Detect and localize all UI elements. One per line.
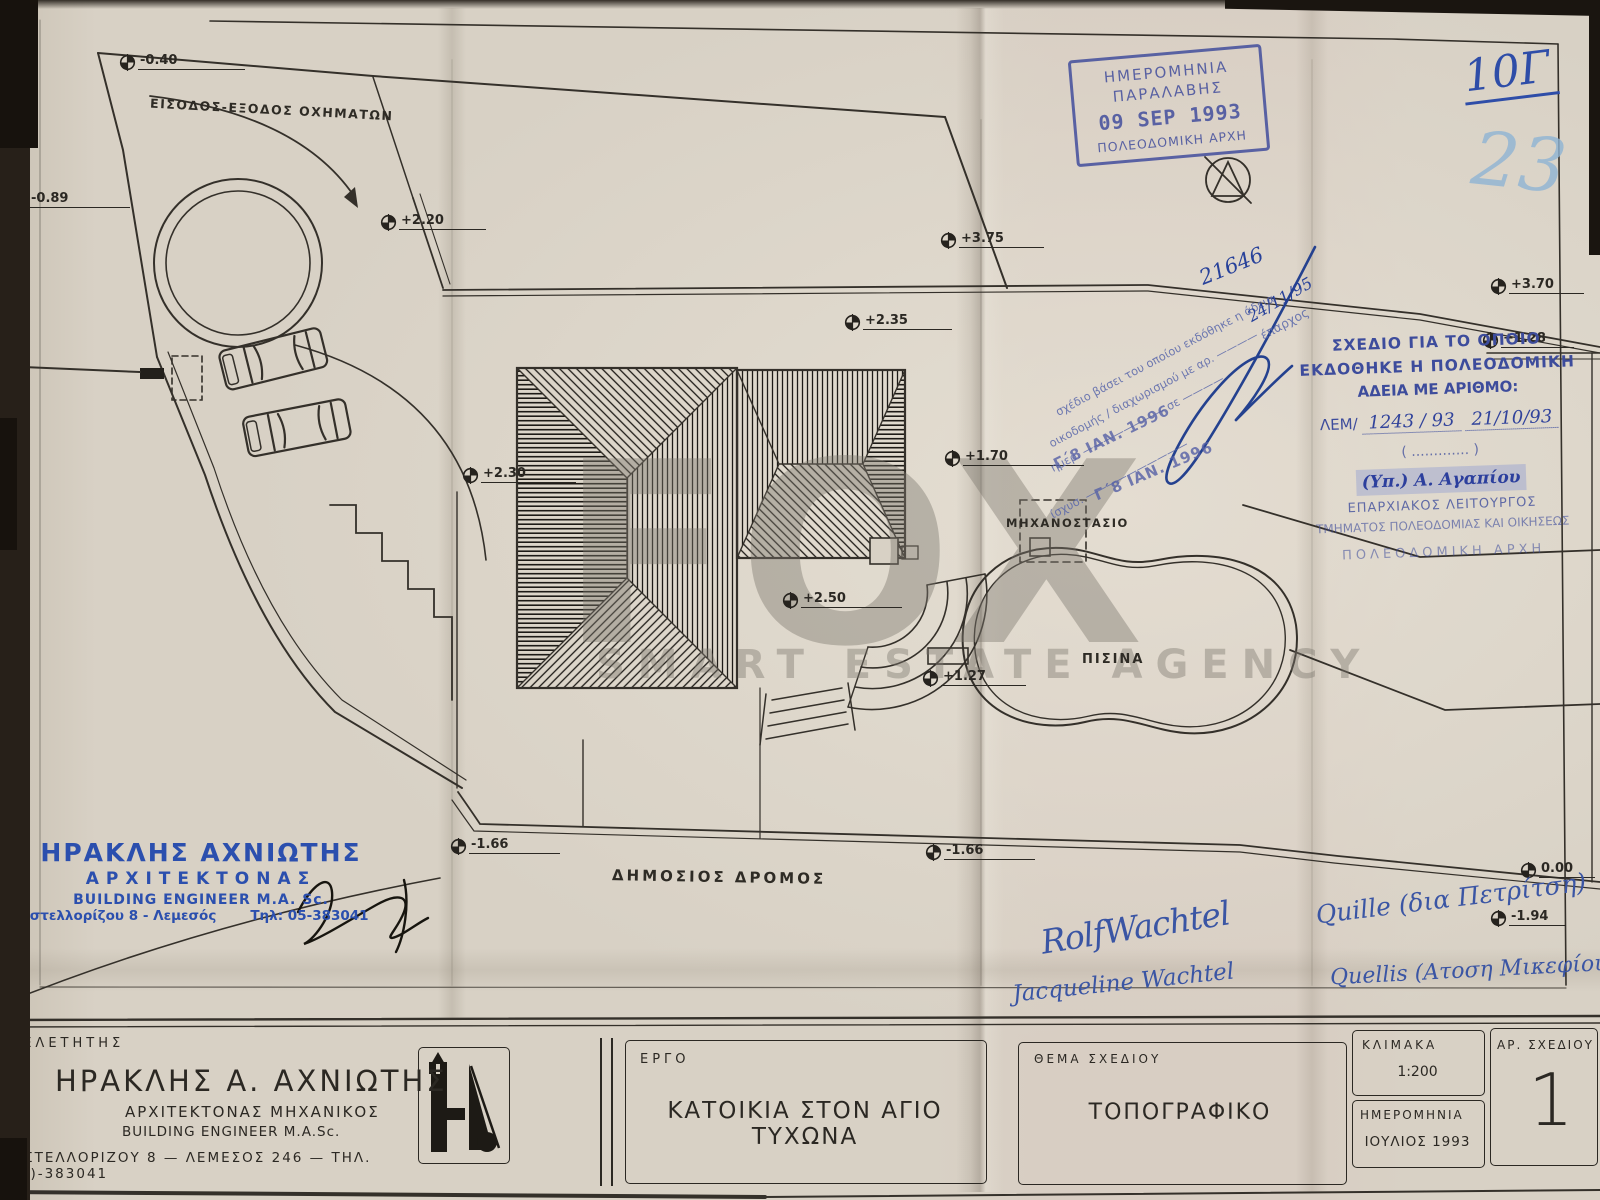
elevation-marker: +2.30	[462, 467, 576, 488]
north-arrow-icon	[1205, 157, 1251, 203]
designer-role-en: BUILDING ENGINEER M.A.Sc.	[122, 1124, 340, 1140]
architect-role-en: BUILDING ENGINEER M.A. Sc.	[26, 892, 376, 908]
benchmark-icon	[450, 838, 467, 859]
permit-ref-prefix: ΛΕΜ/	[1320, 415, 1358, 434]
scan-edge	[0, 0, 38, 148]
scale-value: 1:200	[1352, 1064, 1483, 1080]
elevation-marker: +2.35	[844, 314, 952, 335]
elevation-marker: +3.75	[940, 232, 1044, 253]
scanned-site-plan-sheet: FOX SMART ESTATE AGENCY ΕΙΣΟΔΟΣ-ΕΞΟΔΟΣ Ο…	[0, 0, 1600, 1200]
benchmark-icon	[925, 844, 942, 865]
public-road-label: ΔΗΜΟΣΙΟΣ ΔΡΟΜΟΣ	[612, 866, 826, 888]
drawing-number-label: ΑΡ. ΣΧΕΔΙΟΥ	[1497, 1038, 1594, 1052]
pool-label: ΠΙΣΙΝΑ	[1082, 652, 1144, 667]
handwritten-sheet-code: 10Γ	[1459, 40, 1559, 105]
architect-address: Καστελλορίζου 8 - Λεμεσός	[10, 908, 216, 924]
title-block-divider	[600, 1038, 613, 1186]
date-value: ΙΟΥΛΙΟΣ 1993	[1352, 1134, 1483, 1150]
scan-edge	[0, 0, 30, 1200]
benchmark-icon	[380, 214, 397, 235]
permit-reference: ΛΕΜ/ 1243 / 93 21/10/93	[1289, 402, 1590, 440]
benchmark-icon	[940, 232, 957, 253]
permit-signed-by: (Υπ.) Α. Αγαπίου	[1355, 464, 1527, 496]
benchmark-icon	[1490, 278, 1507, 299]
scale-label: ΚΛΙΜΑΚΑ	[1362, 1038, 1437, 1052]
receipt-date-stamp: ΗΜΕΡΟΜΗΝΙΑ ΠΑΡΑΛΑΒΗΣ 09 SEP 1993 ΠΟΛΕΟΔΟ…	[1068, 44, 1271, 168]
designer-role: ΑΡΧΙΤΕΚΤΟΝΑΣ ΜΗΧΑΝΙΚΟΣ	[125, 1103, 380, 1121]
elevation-marker: -1.66	[925, 844, 1035, 865]
elevation-marker: -1.94	[1490, 910, 1566, 931]
project-label: ΕΡΓΟ	[640, 1052, 690, 1067]
benchmark-icon	[782, 592, 799, 613]
benchmark-icon	[844, 314, 861, 335]
designer-address: ΚΑΣΤΕΛΛΟΡΙΖΟΥ 8 — ΛΕΜΕΣΟΣ 246 — ΤΗΛ. (05…	[2, 1150, 414, 1182]
scan-edge	[0, 418, 17, 550]
elevation-marker: -1.66	[450, 838, 560, 859]
permit-ref-date: 21/10/93	[1465, 406, 1559, 431]
elevation-marker: +3.70	[1490, 278, 1584, 299]
designer-name: ΗΡΑΚΛΗΣ Α. ΑΧΝΙΩΤΗΣ	[55, 1064, 448, 1098]
architect-role: ΑΡΧΙΤΕΚΤΟΝΑΣ	[26, 869, 376, 889]
scan-edge	[0, 1138, 27, 1200]
project-name: ΚΑΤΟΙΚΙΑ ΣΤΟΝ ΑΓΙΟ ΤΥΧΩΝΑ	[630, 1098, 980, 1150]
drawing-number-value: 1	[1528, 1058, 1574, 1142]
benchmark-icon	[944, 450, 961, 471]
architect-contact: Καστελλορίζου 8 - Λεμεσός Τηλ: 05-383041	[10, 908, 430, 924]
handwritten-page-number: 23	[1468, 115, 1571, 210]
subject-value: ΤΟΠΟΓΡΑΦΙΚΟ	[1030, 1100, 1330, 1125]
benchmark-icon	[922, 670, 939, 691]
benchmark-icon	[1490, 910, 1507, 931]
benchmark-icon	[119, 54, 136, 75]
scan-edge	[30, 0, 1225, 9]
machine-room-label: ΜΗΧΑΝΟΣΤΑΣΙΟ	[1006, 516, 1129, 530]
subject-label: ΘΕΜΑ ΣΧΕΔΙΟΥ	[1034, 1052, 1161, 1066]
elevation-marker: +1.27	[922, 670, 1026, 691]
elevation-marker: -0.40	[119, 54, 245, 75]
architect-stamp: ΗΡΑΚΛΗΣ ΑΧΝΙΩΤΗΣ ΑΡΧΙΤΕΚΤΟΝΑΣ BUILDING E…	[26, 838, 376, 908]
architect-phone: Τηλ: 05-383041	[250, 908, 368, 924]
permit-ref-number: 1243 / 93	[1362, 410, 1461, 435]
scan-edge	[1589, 0, 1600, 255]
elevation-marker: +2.20	[380, 214, 486, 235]
date-label: ΗΜΕΡΟΜΗΝΙΑ	[1360, 1108, 1464, 1122]
benchmark-icon	[462, 467, 479, 488]
elevation-marker: +2.50	[782, 592, 902, 613]
architect-name: ΗΡΑΚΛΗΣ ΑΧΝΙΩΤΗΣ	[26, 838, 376, 867]
planning-permit-stamp: ΣΧΕΔΙΟ ΓΙΑ ΤΟ ΟΠΟΙΟ ΕΚΔΟΘΗΚΕ Η ΠΟΛΕΟΔΟΜΙ…	[1286, 325, 1594, 568]
